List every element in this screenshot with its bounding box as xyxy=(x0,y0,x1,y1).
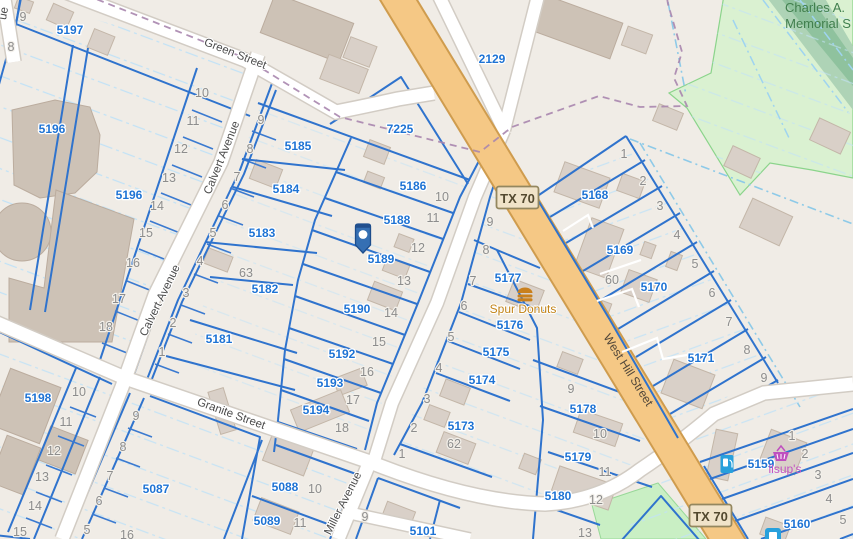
svg-text:5177: 5177 xyxy=(495,271,522,285)
svg-text:62: 62 xyxy=(447,437,461,451)
svg-text:10: 10 xyxy=(435,190,449,204)
svg-text:9: 9 xyxy=(761,371,768,385)
svg-text:TX 70: TX 70 xyxy=(693,509,728,524)
svg-text:5168: 5168 xyxy=(582,188,609,202)
svg-text:5192: 5192 xyxy=(329,347,356,361)
svg-text:5185: 5185 xyxy=(285,139,312,153)
svg-text:5189: 5189 xyxy=(368,252,395,266)
svg-text:5188: 5188 xyxy=(384,213,411,227)
svg-text:18: 18 xyxy=(335,421,349,435)
svg-text:14: 14 xyxy=(384,306,398,320)
svg-text:6: 6 xyxy=(96,494,103,508)
svg-text:12: 12 xyxy=(47,444,61,458)
svg-text:5: 5 xyxy=(692,257,699,271)
svg-text:4: 4 xyxy=(197,254,204,268)
svg-text:60: 60 xyxy=(605,273,619,287)
svg-text:11: 11 xyxy=(294,516,307,530)
svg-text:17: 17 xyxy=(346,393,360,407)
svg-text:5182: 5182 xyxy=(252,282,279,296)
svg-text:5173: 5173 xyxy=(448,419,475,433)
svg-text:5179: 5179 xyxy=(565,450,592,464)
svg-text:1: 1 xyxy=(621,147,628,161)
svg-text:3: 3 xyxy=(183,286,190,300)
svg-text:4: 4 xyxy=(826,492,833,506)
svg-text:7: 7 xyxy=(234,170,241,184)
svg-text:9: 9 xyxy=(133,409,140,423)
svg-text:16: 16 xyxy=(126,256,140,270)
svg-text:8: 8 xyxy=(483,243,490,257)
svg-text:15: 15 xyxy=(139,226,153,240)
svg-text:5186: 5186 xyxy=(400,179,427,193)
svg-text:63: 63 xyxy=(239,266,253,280)
svg-text:16: 16 xyxy=(120,528,134,539)
svg-text:TX 70: TX 70 xyxy=(500,191,535,206)
svg-text:3: 3 xyxy=(657,199,664,213)
svg-text:13: 13 xyxy=(35,470,49,484)
svg-text:5088: 5088 xyxy=(272,480,299,494)
svg-text:10: 10 xyxy=(308,482,322,496)
svg-text:16: 16 xyxy=(360,365,374,379)
svg-text:llsup's: llsup's xyxy=(769,462,802,476)
svg-text:8: 8 xyxy=(247,142,254,156)
svg-text:5: 5 xyxy=(840,513,847,527)
svg-text:1: 1 xyxy=(399,447,406,461)
svg-text:Spur Donuts: Spur Donuts xyxy=(490,302,557,316)
svg-text:8: 8 xyxy=(744,343,751,357)
svg-text:3: 3 xyxy=(424,392,431,406)
svg-text:10: 10 xyxy=(195,86,209,100)
svg-text:8: 8 xyxy=(8,40,15,54)
svg-text:5169: 5169 xyxy=(607,243,634,257)
svg-text:7: 7 xyxy=(470,274,477,288)
svg-text:5196: 5196 xyxy=(116,188,143,202)
svg-text:8: 8 xyxy=(120,440,127,454)
svg-text:5184: 5184 xyxy=(273,182,300,196)
svg-text:14: 14 xyxy=(150,199,164,213)
svg-text:9: 9 xyxy=(258,113,265,127)
svg-text:2: 2 xyxy=(411,421,418,435)
svg-text:5194: 5194 xyxy=(303,403,330,417)
svg-text:5183: 5183 xyxy=(249,226,276,240)
svg-text:13: 13 xyxy=(578,526,592,539)
svg-text:2129: 2129 xyxy=(479,52,506,66)
svg-text:5170: 5170 xyxy=(641,280,668,294)
svg-text:7: 7 xyxy=(107,469,114,483)
svg-text:5196: 5196 xyxy=(39,122,66,136)
svg-text:7: 7 xyxy=(726,315,733,329)
svg-text:10: 10 xyxy=(593,427,607,441)
svg-text:7225: 7225 xyxy=(387,122,414,136)
svg-text:6: 6 xyxy=(461,299,468,313)
svg-text:5087: 5087 xyxy=(143,482,170,496)
svg-text:5160: 5160 xyxy=(784,517,811,531)
svg-text:5101: 5101 xyxy=(410,524,437,538)
svg-text:5180: 5180 xyxy=(545,489,572,503)
svg-text:18: 18 xyxy=(99,320,113,334)
svg-text:Charles A.: Charles A. xyxy=(785,0,845,15)
svg-text:12: 12 xyxy=(589,493,603,507)
svg-text:6: 6 xyxy=(709,286,716,300)
svg-text:1: 1 xyxy=(159,345,166,359)
svg-text:11: 11 xyxy=(427,211,440,225)
svg-text:5178: 5178 xyxy=(570,402,597,416)
svg-text:11: 11 xyxy=(60,415,73,429)
svg-text:17: 17 xyxy=(112,292,126,306)
svg-text:10: 10 xyxy=(72,385,86,399)
svg-text:5171: 5171 xyxy=(688,351,715,365)
svg-text:15: 15 xyxy=(13,525,27,539)
svg-text:5: 5 xyxy=(84,523,91,537)
svg-text:2: 2 xyxy=(170,316,177,330)
svg-text:9: 9 xyxy=(568,382,575,396)
svg-text:5181: 5181 xyxy=(206,332,233,346)
svg-text:13: 13 xyxy=(397,274,411,288)
svg-text:4: 4 xyxy=(674,228,681,242)
svg-text:5175: 5175 xyxy=(483,345,510,359)
svg-text:9: 9 xyxy=(20,10,27,24)
svg-text:2: 2 xyxy=(640,174,647,188)
svg-text:1: 1 xyxy=(789,429,796,443)
svg-text:5089: 5089 xyxy=(254,514,281,528)
svg-text:5190: 5190 xyxy=(344,302,371,316)
svg-text:9: 9 xyxy=(362,510,369,524)
svg-text:14: 14 xyxy=(28,499,42,513)
svg-text:6: 6 xyxy=(222,198,229,212)
svg-text:5193: 5193 xyxy=(317,376,344,390)
svg-text:12: 12 xyxy=(174,142,188,156)
svg-text:13: 13 xyxy=(162,171,176,185)
svg-text:9: 9 xyxy=(487,215,494,229)
svg-text:5: 5 xyxy=(210,226,217,240)
svg-text:5174: 5174 xyxy=(469,373,496,387)
svg-text:3: 3 xyxy=(815,468,822,482)
svg-text:5176: 5176 xyxy=(497,318,524,332)
svg-text:2: 2 xyxy=(802,447,809,461)
svg-text:12: 12 xyxy=(411,241,425,255)
svg-text:15: 15 xyxy=(372,335,386,349)
svg-text:11: 11 xyxy=(599,465,612,479)
svg-text:5: 5 xyxy=(448,330,455,344)
svg-text:Memorial S: Memorial S xyxy=(785,16,851,31)
svg-text:5197: 5197 xyxy=(57,23,84,37)
svg-text:4: 4 xyxy=(436,361,443,375)
svg-text:5198: 5198 xyxy=(25,391,52,405)
svg-text:11: 11 xyxy=(187,114,200,128)
